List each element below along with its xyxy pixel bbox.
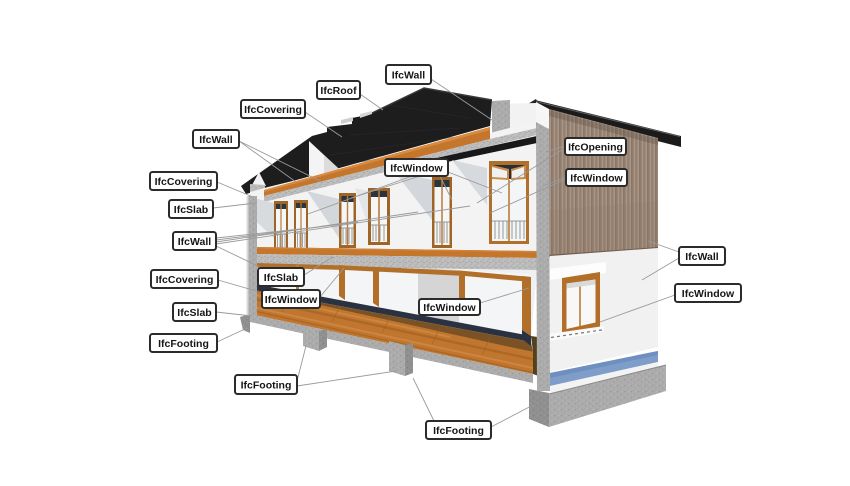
svg-text:IfcWall: IfcWall <box>178 236 212 248</box>
svg-text:IfcFooting: IfcFooting <box>433 425 484 437</box>
svg-text:IfcSlab: IfcSlab <box>264 272 298 284</box>
svg-text:IfcOpening: IfcOpening <box>568 142 623 154</box>
svg-text:IfcWindow: IfcWindow <box>390 163 443 175</box>
svg-text:IfcCovering: IfcCovering <box>244 104 302 116</box>
svg-text:IfcWindow: IfcWindow <box>265 294 318 306</box>
svg-text:IfcRoof: IfcRoof <box>320 85 357 97</box>
svg-text:IfcWall: IfcWall <box>392 70 426 82</box>
svg-text:IfcWindow: IfcWindow <box>423 302 476 314</box>
svg-text:IfcSlab: IfcSlab <box>174 204 208 216</box>
svg-text:IfcCovering: IfcCovering <box>156 274 214 286</box>
svg-text:IfcCovering: IfcCovering <box>155 176 213 188</box>
svg-text:IfcWindow: IfcWindow <box>570 173 623 185</box>
svg-text:IfcWall: IfcWall <box>685 251 719 263</box>
svg-text:IfcSlab: IfcSlab <box>177 307 211 319</box>
svg-text:IfcWall: IfcWall <box>199 134 233 146</box>
svg-text:IfcWindow: IfcWindow <box>682 288 735 300</box>
svg-text:IfcFooting: IfcFooting <box>241 380 292 392</box>
svg-text:IfcFooting: IfcFooting <box>158 338 209 350</box>
